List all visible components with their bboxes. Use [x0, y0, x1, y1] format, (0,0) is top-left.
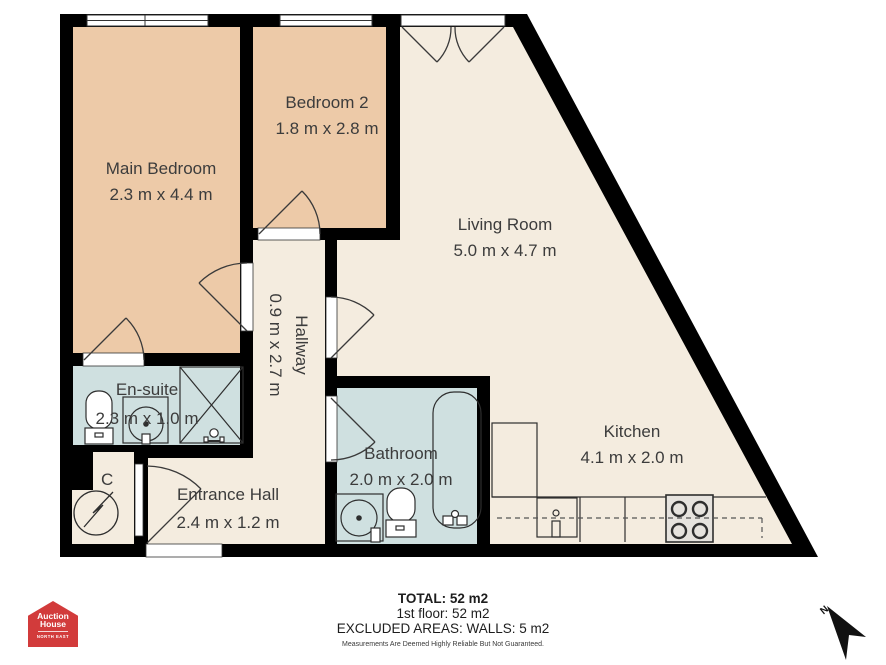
hallway-floor: [253, 240, 325, 458]
area-summary: TOTAL: 52 m2 1st floor: 52 m2 EXCLUDED A…: [243, 591, 643, 636]
hallway-living-door-leaf: [326, 297, 337, 358]
bathroom-door-leaf: [326, 396, 337, 462]
window-main-bedroom-1: [87, 15, 145, 26]
floorplan-page: Main Bedroom 2.3 m x 4.4 m Bedroom 2 1.8…: [0, 0, 886, 665]
closet-label: C: [101, 470, 113, 490]
total-area-text: TOTAL: 52 m2: [243, 591, 643, 606]
floorplan-drawing: [0, 0, 886, 665]
bedroom2-door-leaf: [258, 228, 320, 240]
north-arrow-icon: [827, 606, 866, 660]
bedroom2-floor: [253, 27, 386, 228]
toilet-icon: [387, 488, 415, 522]
ensuite-door-leaf: [83, 353, 144, 366]
disclaimer-text: Measurements Are Deemed Highly Reliable …: [193, 641, 693, 648]
front-door-leaf: [146, 544, 222, 557]
excluded-area-text: EXCLUDED AREAS: WALLS: 5 m2: [243, 621, 643, 636]
logo-line2: House: [28, 621, 78, 629]
closet-door-leaf: [135, 464, 143, 536]
floor-area-text: 1st floor: 52 m2: [243, 606, 643, 621]
logo-region: NORTH EAST: [28, 634, 78, 639]
main-bedroom-floor: [73, 27, 240, 353]
window-main-bedroom-2: [145, 15, 208, 26]
toilet-icon: [86, 391, 112, 429]
window-bedroom2: [280, 15, 372, 26]
logo-divider: [38, 631, 68, 632]
french-door-frame: [401, 15, 505, 26]
main-bedroom-door-leaf: [241, 263, 253, 331]
